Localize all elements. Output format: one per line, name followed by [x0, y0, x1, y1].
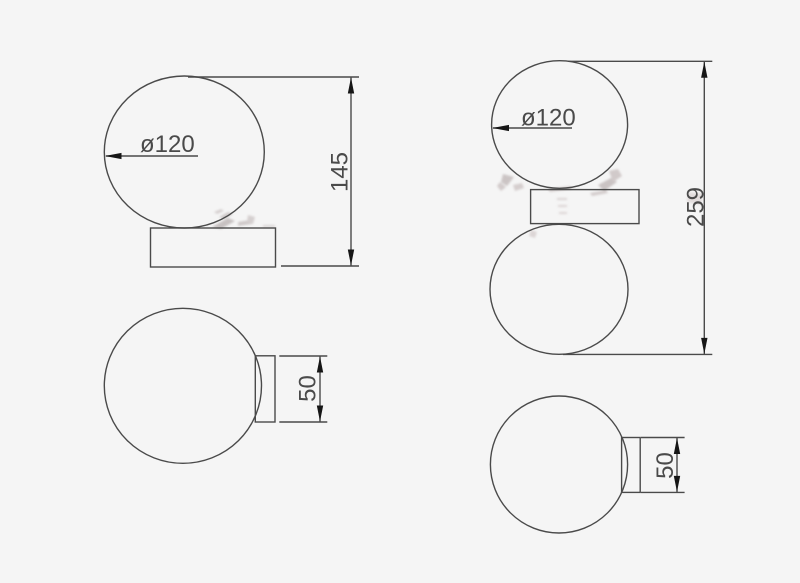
- svg-text:ø120: ø120: [140, 131, 195, 158]
- svg-text:145: 145: [327, 152, 354, 192]
- svg-text:50: 50: [652, 452, 679, 479]
- svg-text:50: 50: [295, 375, 322, 402]
- svg-text:ø120: ø120: [521, 105, 576, 132]
- svg-text:259: 259: [683, 187, 710, 227]
